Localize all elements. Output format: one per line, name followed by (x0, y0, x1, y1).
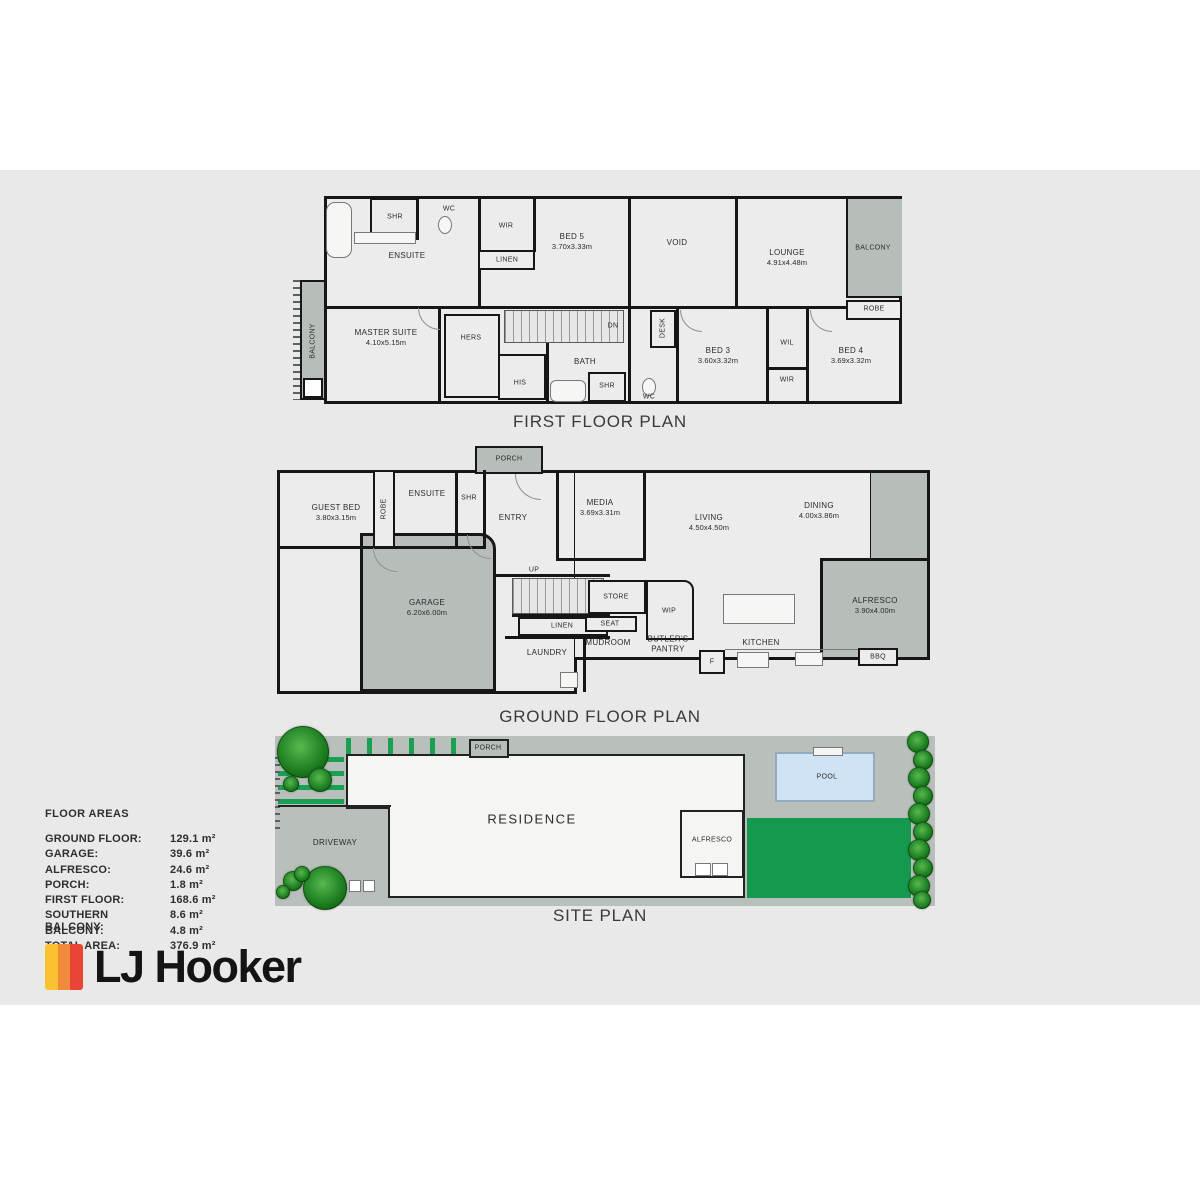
vanity-icon (354, 232, 416, 244)
room-label-shr: SHR (461, 493, 477, 502)
room-name: DINING (799, 501, 839, 511)
site-plan-title: SITE PLAN (553, 906, 647, 926)
site-label-alfresco: ALFRESCO (692, 835, 732, 844)
room-label-desk: DESK (658, 318, 667, 338)
area-value: 39.6 m² (170, 848, 209, 863)
room-label-wip: WIP (662, 606, 676, 615)
room-label-linen: LINEN (551, 621, 573, 630)
room-dims: 3.80x3.15m (312, 513, 361, 523)
room-name: LOUNGE (767, 248, 807, 258)
area-label: GARAGE: (45, 848, 170, 863)
room-label-bed5: BED 53.70x3.33m (552, 232, 592, 252)
room-label-shr-bath: SHR (599, 381, 615, 390)
cooktop-icon (737, 652, 769, 668)
wall (806, 308, 809, 404)
room-label-mudroom: MUDROOM (585, 638, 630, 648)
wall (278, 805, 391, 807)
floor-area-row: FIRST FLOOR:168.6 m² (45, 894, 216, 909)
room-dims: 4.50x4.50m (689, 523, 729, 533)
floor-areas-title: FLOOR AREAS (45, 808, 216, 820)
shrub-icon (283, 776, 299, 792)
room-dims: 3.69x3.32m (831, 356, 871, 366)
lj-hooker-logo: LJ Hooker (45, 944, 301, 990)
room-label-store: STORE (603, 592, 629, 601)
side-path (346, 738, 469, 755)
balcony-rail-icon (293, 280, 300, 400)
room-name: LIVING (689, 513, 729, 523)
wall (546, 343, 549, 404)
floor-area-row: GROUND FLOOR:129.1 m² (45, 833, 216, 848)
wall (533, 196, 536, 252)
area-value: 1.8 m² (170, 879, 203, 894)
floor-area-row: ALFRESCO:24.6 m² (45, 864, 216, 879)
wall (643, 470, 646, 560)
room-name: ALFRESCO (852, 596, 898, 606)
area-label: BALCONY: (45, 925, 170, 940)
room-label-bed4: BED 43.69x3.32m (831, 346, 871, 366)
pool-steps (813, 747, 843, 756)
room-label-wil: WIL (780, 338, 793, 347)
area-value: 24.6 m² (170, 864, 209, 879)
wall (416, 196, 419, 240)
floor-area-row: SOUTHERN BALCONY:8.6 m² (45, 909, 216, 924)
wall (676, 308, 679, 404)
room-name: GARAGE (407, 598, 447, 608)
room-label-butlers-pantry: BUTLER'S PANTRY (643, 635, 693, 656)
logo-stripes-icon (45, 944, 83, 990)
wall (324, 306, 848, 309)
shrub-icon (308, 768, 332, 792)
label-bbq: BBQ (870, 652, 886, 661)
room-label-balcony-right: BALCONY (855, 243, 891, 252)
floor-area-row: BALCONY:4.8 m² (45, 925, 216, 940)
ground-floor-plan-title: GROUND FLOOR PLAN (499, 707, 701, 727)
room-label-balcony-left: BALCONY (308, 323, 317, 359)
room-label-media: MEDIA3.69x3.31m (580, 498, 620, 518)
room-dims: 3.90x4.00m (852, 606, 898, 616)
site-label-residence: RESIDENCE (487, 812, 576, 829)
room-label-ensuite: ENSUITE (409, 489, 446, 499)
room-dims: 4.91x4.48m (767, 258, 807, 268)
room-label-guest-bed: GUEST BED3.80x3.15m (312, 503, 361, 523)
hers-wardrobe (444, 314, 500, 398)
room-label-bath: BATH (574, 357, 596, 367)
sink-icon (795, 652, 823, 666)
room-name: MASTER SUITE (355, 328, 418, 338)
room-label-dining: DINING4.00x3.86m (799, 501, 839, 521)
room-label-wc-bath: WC (643, 392, 655, 401)
first-floor-plan: BALCONY BALCONY ROBE (300, 196, 906, 408)
floor-areas-table: FLOOR AREAS GROUND FLOOR:129.1 m² GARAGE… (45, 808, 216, 955)
first-floor-plan-title: FIRST FLOOR PLAN (513, 412, 687, 432)
room-label-living: LIVING4.50x4.50m (689, 513, 729, 533)
logo-wordmark: LJ Hooker (94, 944, 301, 990)
room-label-robe-right: ROBE (863, 304, 884, 313)
room-label-hers: HERS (461, 333, 482, 342)
room-dims: 3.69x3.31m (580, 508, 620, 518)
room-label-seat: SEAT (601, 619, 620, 628)
area-label: FIRST FLOOR: (45, 894, 170, 909)
toilet-icon (438, 216, 452, 234)
upper-balcony-over (871, 470, 930, 562)
site-plan: PORCH RESIDENCE DRIVEWAY ALFRESCO POOL (275, 728, 935, 906)
kitchen-island (723, 594, 795, 624)
stairs-label-up: UP (529, 565, 539, 574)
room-label-his: HIS (514, 378, 527, 387)
area-label: ALFRESCO: (45, 864, 170, 879)
room-dims: 3.70x3.33m (552, 242, 592, 252)
shrub-icon (913, 891, 931, 909)
room-dims: 4.00x3.86m (799, 511, 839, 521)
room-label-laundry: LAUNDRY (527, 648, 567, 658)
room-name: BED 4 (831, 346, 871, 356)
area-label: GROUND FLOOR: (45, 833, 170, 848)
ground-floor-plan: PORCH GUEST BED3.80x3.15m ROBE ENSUITE S… (275, 446, 933, 698)
room-label-master-suite: MASTER SUITE4.10x5.15m (355, 328, 418, 348)
room-label-linen: LINEN (496, 255, 518, 264)
logo-stripe-orange (58, 944, 70, 990)
area-value: 4.8 m² (170, 925, 203, 940)
logo-stripe-red (70, 944, 83, 990)
room-label-lounge: LOUNGE4.91x4.48m (767, 248, 807, 268)
kitchen-counter (725, 649, 870, 650)
site-label-pool: POOL (817, 772, 838, 781)
room-label-porch: PORCH (496, 454, 523, 463)
room-label-ensuite: ENSUITE (389, 251, 426, 261)
wall (455, 470, 458, 548)
room-name: BED 5 (552, 232, 592, 242)
area-value: 168.6 m² (170, 894, 216, 909)
room-name: BED 3 (698, 346, 738, 356)
floor-area-row: PORCH:1.8 m² (45, 879, 216, 894)
bin-box (349, 880, 361, 892)
wall (766, 367, 806, 370)
lawn (747, 818, 911, 898)
room-name: MEDIA (580, 498, 620, 508)
laundry-tub-icon (560, 672, 578, 688)
room-label-wc-top: WC (443, 204, 455, 213)
area-label: SOUTHERN BALCONY: (45, 909, 170, 924)
room-label-bed3: BED 33.60x3.32m (698, 346, 738, 366)
wall (628, 308, 631, 404)
bathtub-icon (326, 202, 352, 258)
his-wardrobe (498, 354, 546, 400)
balcony-planter (303, 378, 323, 398)
room-label-alfresco: ALFRESCO3.90x4.00m (852, 596, 898, 616)
fence-icon (275, 757, 280, 829)
room-label-wir-top: WIR (499, 221, 514, 230)
room-label-kitchen: KITCHEN (742, 638, 779, 648)
wall (735, 196, 738, 308)
wall (556, 558, 646, 561)
room-dims: 6.20x6.00m (407, 608, 447, 618)
area-label: PORCH: (45, 879, 170, 894)
room-dims: 4.10x5.15m (355, 338, 418, 348)
room-label-entry: ENTRY (499, 513, 527, 523)
stairs-label-dn: DN (608, 321, 619, 330)
room-label-void: VOID (667, 238, 688, 248)
area-value: 8.6 m² (170, 909, 203, 924)
room-name: GUEST BED (312, 503, 361, 513)
wall (556, 470, 559, 560)
floorplan-sheet: BALCONY BALCONY ROBE (0, 0, 1200, 1200)
stairs-down (504, 310, 624, 343)
step-box (695, 863, 711, 876)
logo-stripe-yellow (45, 944, 58, 990)
room-dims: 3.60x3.32m (698, 356, 738, 366)
shrub-icon (294, 866, 310, 882)
label-fridge: F (710, 657, 715, 666)
bathtub-icon (550, 380, 586, 402)
wall (628, 196, 631, 308)
floor-area-row: GARAGE:39.6 m² (45, 848, 216, 863)
bin-box (363, 880, 375, 892)
shrub-icon (276, 885, 290, 899)
site-label-driveway: DRIVEWAY (313, 838, 357, 848)
wall (496, 574, 610, 577)
wall (766, 308, 769, 404)
step-box (712, 863, 728, 876)
room-label-robe: ROBE (379, 498, 388, 519)
site-label-porch: PORCH (475, 743, 502, 752)
room-label-wir-bottom: WIR (780, 375, 795, 384)
area-value: 129.1 m² (170, 833, 216, 848)
room-label-shr-ensuite: SHR (387, 212, 403, 221)
room-label-garage: GARAGE6.20x6.00m (407, 598, 447, 618)
